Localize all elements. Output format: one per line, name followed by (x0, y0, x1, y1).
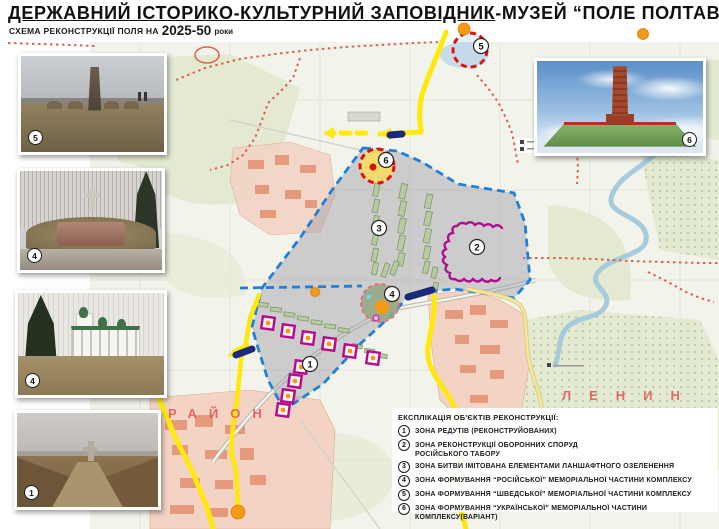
legend-item: 6 ЗОНА ФОРМУВАННЯ “УКРАЇНСЬКОЇ” МЕМОРІАЛ… (398, 503, 712, 523)
district-label-raion: РАЙОН (168, 406, 274, 421)
photo-obelisk-render: 6 (534, 58, 706, 156)
field (21, 104, 164, 152)
legend-num-circle: 4 (398, 475, 410, 487)
subtitle-units: роки (214, 27, 233, 36)
obelisk-column (612, 66, 628, 116)
mound (47, 101, 62, 109)
page-title: ДЕРЖАВНИЙ ІСТОРИКО-КУЛЬТУРНИЙ ЗАПОВІДНИК… (8, 3, 719, 24)
person (144, 92, 147, 101)
legend-num-circle: 2 (398, 439, 410, 451)
legend-item-text: ЗОНА РЕКОНСТРУКЦІЇ ОБОРОННИХ СПОРУД РОСІ… (415, 439, 578, 459)
mound (68, 101, 83, 109)
legend-item: 2 ЗОНА РЕКОНСТРУКЦІЇ ОБОРОННИХ СПОРУД РО… (398, 439, 712, 459)
page-title-underlined: ДЕРЖАВНИЙ ІСТОРИКО-КУЛЬТУРНИЙ ЗАПОВІДНИК (8, 3, 495, 23)
photo-badge: 6 (682, 132, 697, 147)
subtitle-years: 2025-50 (162, 25, 212, 36)
legend-item-text: ЗОНА ФОРМУВАННЯ “РОСІЙСЬКОЇ” МЕМОРІАЛЬНО… (415, 475, 692, 486)
zone-marker-2: 2 (470, 240, 485, 255)
legend-item: 5 ЗОНА ФОРМУВАННЯ “ШВЕДСЬКОЇ” МЕМОРІАЛЬН… (398, 489, 712, 501)
photo-badge: 4 (25, 373, 40, 388)
legend-num-circle: 1 (398, 425, 410, 437)
mound (124, 101, 139, 109)
stone-cross-arm (83, 447, 97, 452)
svg-text:2: 2 (474, 243, 479, 254)
dome (117, 319, 126, 330)
page-subtitle: СХЕМА РЕКОНСТРУКЦІЇ ПОЛЯ НА 2025-50 роки (9, 25, 233, 36)
dome (79, 307, 88, 318)
cross-arm (84, 193, 100, 197)
page-title-rest: -МУЗЕЙ “ПОЛЕ ПОЛТАВСЬКОЇ БИТВИ” (495, 3, 719, 23)
legend-title: ЕКСПЛІКАЦІЯ ОБ'ЄКТІВ РЕКОНСТРУКЦІЇ: (398, 413, 712, 422)
poster-page: { "header": { "title_main": "ДЕРЖАВНИЙ І… (0, 0, 719, 529)
mound (104, 101, 119, 109)
church-building (71, 326, 140, 360)
photo-church: 4 (15, 290, 167, 398)
district-label-lenin: ЛЕНИН (562, 388, 698, 403)
zone-marker-4: 4 (385, 287, 400, 302)
legend-num-circle: 3 (398, 461, 410, 473)
cross (90, 187, 95, 211)
person (138, 92, 141, 101)
zone-marker-1: 1 (303, 357, 318, 372)
svg-text:4: 4 (389, 290, 395, 301)
zone-marker-5: 5 (474, 39, 489, 54)
zone-marker-3: 3 (372, 221, 387, 236)
svg-text:3: 3 (376, 224, 381, 235)
svg-text:5: 5 (478, 42, 484, 53)
memorial-mound (544, 123, 697, 147)
photo-swedish-monument: 5 (18, 53, 167, 155)
legend-item: 3 ЗОНА БИТВИ ІМІТОВАНА ЕЛЕМЕНТАМИ ЛАНШАФ… (398, 461, 712, 473)
legend-item-text: ЗОНА БИТВИ ІМІТОВАНА ЕЛЕМЕНТАМИ ЛАНШАФТН… (415, 461, 674, 472)
legend-item: 1 ЗОНА РЕДУТІВ (РЕКОНСТРУЙОВАНИХ) (398, 425, 712, 437)
legend-num-circle: 5 (398, 489, 410, 501)
legend-item-text: ЗОНА ФОРМУВАННЯ “ШВЕДСЬКОЇ” МЕМОРІАЛЬНОЇ… (415, 489, 691, 500)
photo-badge: 4 (27, 248, 42, 263)
zone-marker-6: 6 (379, 153, 394, 168)
legend-item-text: ЗОНА РЕДУТІВ (РЕКОНСТРУЙОВАНИХ) (415, 425, 557, 436)
svg-text:1: 1 (307, 360, 313, 371)
legend-num-circle: 6 (398, 503, 410, 515)
field (18, 356, 164, 395)
svg-text:6: 6 (383, 156, 388, 167)
photo-badge: 1 (24, 485, 39, 500)
granite-base (57, 222, 125, 246)
legend-item: 4 ЗОНА ФОРМУВАННЯ “РОСІЙСЬКОЇ” МЕМОРІАЛЬ… (398, 475, 712, 487)
photo-badge: 5 (28, 130, 43, 145)
legend-item-text: ЗОНА ФОРМУВАННЯ “УКРАЇНСЬКОЇ” МЕМОРІАЛЬН… (415, 503, 712, 523)
photo-redoubt: 1 (14, 410, 161, 510)
legend-box: ЕКСПЛІКАЦІЯ ОБ'ЄКТІВ РЕКОНСТРУКЦІЇ: 1 ЗО… (392, 408, 718, 512)
photo-cross-monument: 4 (17, 168, 165, 273)
subtitle-label: СХЕМА РЕКОНСТРУКЦІЇ ПОЛЯ НА (9, 26, 159, 36)
